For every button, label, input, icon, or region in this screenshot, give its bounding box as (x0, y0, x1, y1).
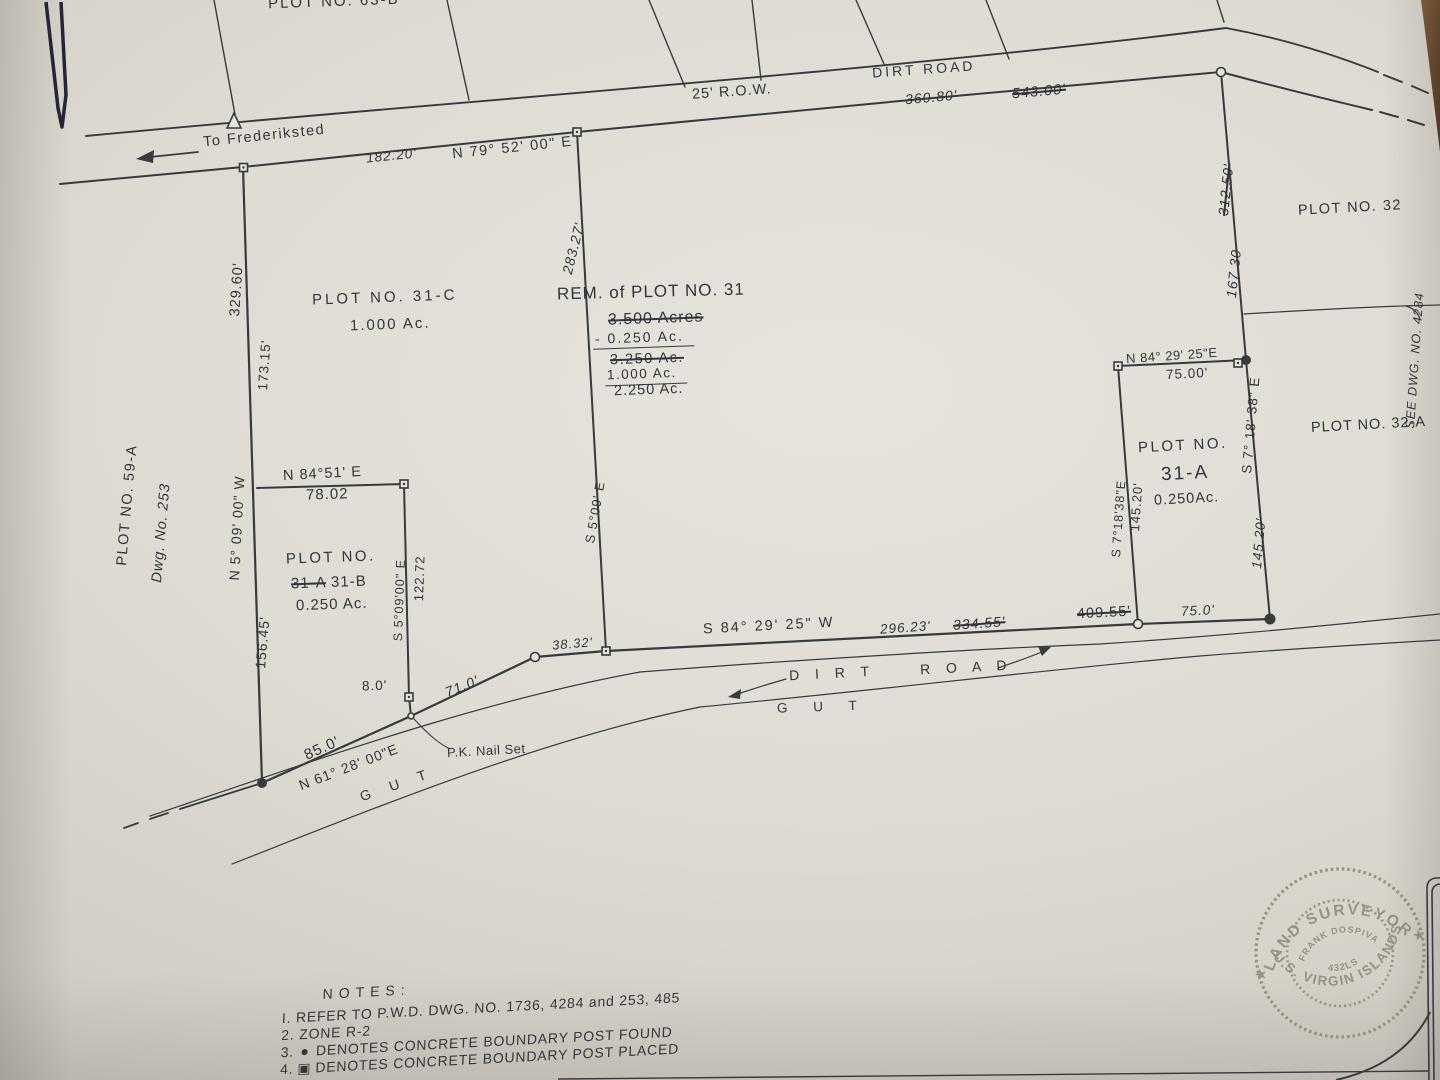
plot-31b-area: 0.250 Ac. (296, 596, 368, 613)
concrete-post-found-icon: ● (294, 1042, 317, 1060)
dist-329-60: 329.60' (228, 262, 246, 317)
dist-75-00: 75.00' (1166, 366, 1209, 382)
concrete-post-placed-icon: ▣ (293, 1059, 316, 1077)
dist-145-20-west: 145.20' (1128, 482, 1144, 532)
dist-75-0: 75.0' (1181, 603, 1216, 618)
dist-409-55-struck: 409.55' (1077, 605, 1132, 622)
dist-296-23: 296.23' (880, 619, 932, 636)
paper-clip (46, 2, 66, 127)
dist-334-55-struck: 334.55' (953, 614, 1006, 632)
plot-31b-new-name: 31-B (331, 573, 367, 591)
bearing-s5-09-00e-31b: S 5°09'00" E (392, 559, 407, 642)
road-lines (60, 28, 1440, 864)
leader-arrows (136, 150, 1051, 749)
rem-plot-31-title: REM. of PLOT NO. 31 (557, 281, 745, 303)
rem-area-3500-struck: 3.500 Acres (608, 309, 704, 328)
gut-bottom-label: G U T (777, 698, 868, 715)
plot-31b-old-name: 31-A (291, 574, 326, 592)
plot-31c-area: 1.000 Ac. (350, 316, 431, 334)
pk-nail-set-label: P.K. Nail Set (447, 742, 526, 759)
note-3-number: 3. (280, 1043, 294, 1060)
surveyor-stamp: LAND SURVEYOR U.S. VIRGIN ISLANDS FRANK … (1234, 850, 1440, 1055)
dist-173-15: 173.15' (256, 339, 273, 391)
stamp-star-right-icon: ★ (1411, 926, 1426, 943)
rem-total-2250: 2.250 Ac. (614, 382, 684, 399)
table-corner (1421, 0, 1440, 152)
note-4-number: 4. (280, 1061, 294, 1078)
plot-31a-name: 31-A (1161, 463, 1210, 484)
plot-31a-area: 0.250Ac. (1154, 490, 1220, 508)
plot-31b-title: PLOT NO. (286, 548, 376, 566)
rem-minus-0250: - 0.250 Ac. (593, 328, 695, 350)
dist-8-0: 8.0' (362, 679, 388, 693)
dist-38-32: 38.32' (552, 635, 594, 652)
dist-78-02: 78.02 (306, 486, 349, 502)
scanned-survey-map: { "colors":{"paper":"#dedbd3","ink":"#36… (0, 0, 1440, 1080)
dist-122-72: 122.72 (412, 555, 427, 601)
plot-31b-name: 31-A 31-B (291, 574, 367, 592)
